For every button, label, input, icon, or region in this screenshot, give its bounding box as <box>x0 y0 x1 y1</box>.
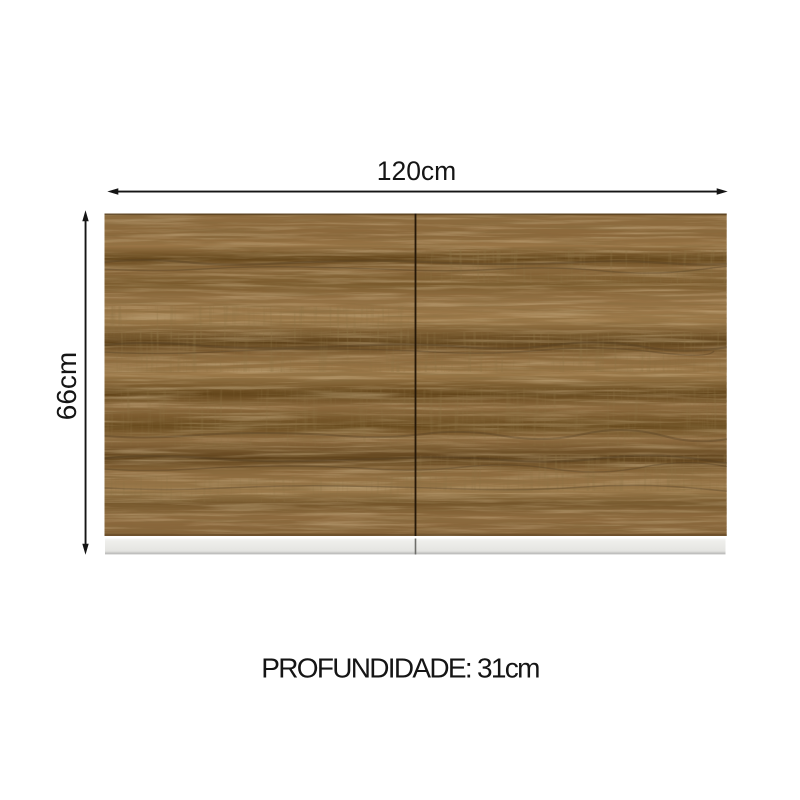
svg-text:66cm: 66cm <box>51 352 82 420</box>
svg-text:120cm: 120cm <box>377 156 457 186</box>
svg-text:PROFUNDIDADE: 31cm: PROFUNDIDADE: 31cm <box>261 653 539 684</box>
